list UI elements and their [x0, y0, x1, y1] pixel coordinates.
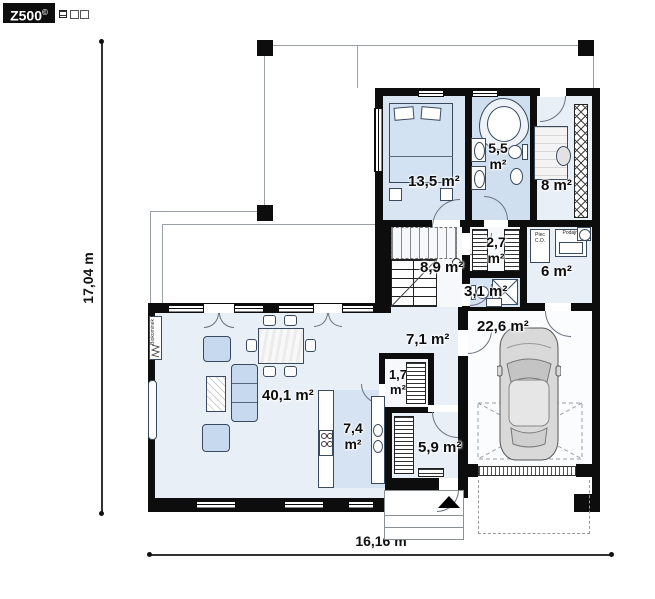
room-label-stair-hall: 8,9 m²: [420, 260, 463, 275]
terrace-outline: [357, 45, 358, 88]
logo-window-icon: [59, 10, 67, 18]
wall-entry-bay: [458, 478, 468, 490]
terrace-pillar: [257, 40, 273, 56]
window: [342, 304, 374, 313]
window: [374, 108, 383, 172]
terrace-outline: [264, 45, 265, 212]
garage-door: [478, 466, 576, 476]
dimension-endpoint: [609, 552, 614, 557]
car: [497, 326, 561, 462]
dining-chair: [263, 315, 276, 326]
door-gap-entrance-hall: [428, 405, 458, 412]
window: [196, 500, 236, 509]
fireplace-label: Biokominek: [150, 319, 156, 345]
window: [234, 304, 264, 313]
sofa: [231, 364, 258, 422]
bed-blanket-line: [389, 156, 453, 157]
width-dimension-line: [150, 554, 612, 556]
floor-plan: Z500© 17,04 m 16,16 m: [0, 0, 655, 599]
feeder-hopper: [559, 242, 583, 254]
window: [348, 500, 374, 509]
bathtub-inner: [487, 106, 521, 142]
room-label-bathroom: 5,5m²: [481, 140, 515, 172]
dining-chair: [284, 315, 297, 326]
height-dimension-label: 17,04 m: [80, 243, 96, 313]
window-narrow: [148, 380, 157, 440]
zigzag-icon: [151, 344, 161, 358]
wardrobe-closet: [574, 104, 588, 218]
armchair: [202, 424, 230, 452]
terrace-pillar: [257, 205, 273, 221]
burner: [327, 441, 333, 447]
logo-square-icon: [70, 10, 79, 19]
dining-table: [258, 328, 304, 364]
entrance-door-gap: [439, 478, 458, 490]
porch-step-line: [385, 527, 463, 528]
toilet-tank: [522, 144, 528, 160]
window: [168, 304, 204, 313]
kitchen-sink: [373, 440, 383, 453]
room-label-garage: 22,6 m²: [477, 319, 529, 334]
terrace-pillar: [578, 40, 594, 56]
hall-wardrobe: [394, 416, 414, 474]
copyright-mark: ©: [42, 8, 48, 17]
door-gap-wardrobe: [462, 233, 470, 255]
sink-basin: [474, 170, 485, 188]
stairs-upper-flight: [391, 227, 457, 259]
garage-door-jamb: [576, 464, 600, 477]
dimension-endpoint: [147, 552, 152, 557]
terrace-outline: [150, 211, 265, 212]
garage-apron: [478, 480, 590, 534]
dining-chair: [246, 339, 257, 352]
drain-circle: [579, 229, 591, 241]
brand-logo: Z500©: [3, 3, 55, 23]
porch-step-line: [385, 515, 463, 516]
pillow: [420, 106, 441, 121]
window: [278, 304, 314, 313]
window: [472, 89, 498, 97]
room-label-entrance-hall: 5,9 m²: [418, 440, 461, 455]
terrace-outline: [264, 45, 594, 46]
door-gap-garage: [458, 330, 468, 356]
door-gap-bathroom: [484, 220, 508, 227]
brand-text: Z500: [10, 8, 42, 24]
window: [418, 89, 444, 97]
armchair: [203, 336, 231, 362]
boiler: Piec C.O.: [530, 229, 550, 263]
pillow: [393, 106, 414, 121]
terrace-door-gap: [204, 304, 234, 313]
terrace-outline: [162, 224, 163, 306]
terrace-outline: [150, 211, 151, 306]
logo-square-icon: [80, 10, 89, 19]
room-label-office: 8 m²: [541, 178, 572, 193]
dimension-endpoint: [99, 511, 104, 516]
room-label-pantry: 1,7m²: [385, 368, 411, 398]
kitchen-sink: [373, 424, 383, 437]
entrance-arrow: [438, 496, 460, 508]
coffee-table: [206, 376, 226, 412]
window: [284, 500, 324, 509]
doormat: [418, 468, 444, 477]
garage-door-jamb: [460, 464, 478, 477]
room-label-wardrobe: 2,7m²: [480, 234, 512, 266]
dining-chair: [284, 366, 297, 377]
burner: [327, 433, 333, 439]
fireplace: Biokominek: [149, 316, 162, 360]
boiler-label: Piec C.O.: [531, 233, 549, 245]
height-dimension-line: [101, 42, 103, 514]
wall-entry-bay: [383, 478, 439, 490]
dining-chair: [305, 339, 316, 352]
desk-chair: [556, 146, 571, 166]
terrace-outline: [162, 224, 383, 225]
room-label-corridor: 7,1 m²: [406, 332, 449, 347]
room-label-kitchen: 7,4m²: [338, 420, 368, 452]
room-label-toilet: 3,1 m²: [464, 284, 507, 299]
wall-garage-right: [592, 303, 600, 512]
nightstand: [389, 188, 402, 201]
terrace-door-gap: [314, 304, 342, 313]
room-label-living-room: 40,1 m²: [262, 388, 314, 403]
door-gap-utility: [545, 303, 571, 311]
room-label-utility: 6 m²: [541, 264, 572, 279]
dining-chair: [263, 366, 276, 377]
room-label-bedroom: 13,5 m²: [408, 174, 460, 189]
dimension-endpoint: [99, 39, 104, 44]
